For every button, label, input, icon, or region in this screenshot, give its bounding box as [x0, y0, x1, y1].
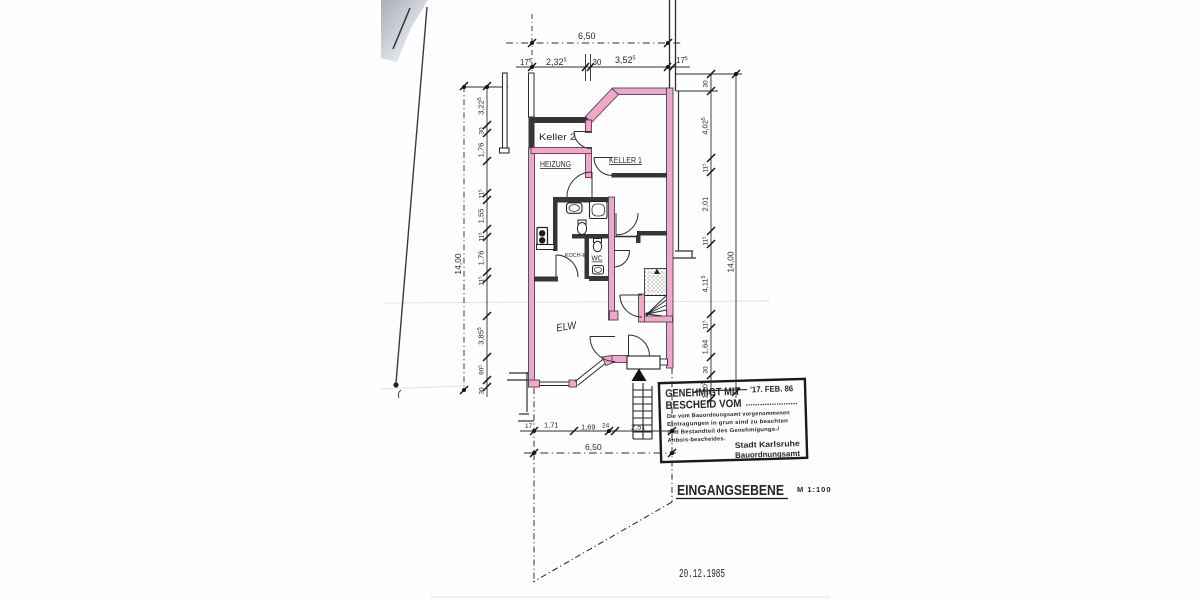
svg-text:30: 30 — [703, 366, 710, 374]
svg-text:BESCHEID VOM: BESCHEID VOM — [665, 398, 741, 412]
svg-text:1,76: 1,76 — [477, 143, 486, 158]
svg-text:24: 24 — [602, 423, 610, 430]
svg-text:Keller 2: Keller 2 — [539, 132, 576, 143]
svg-text:6,50: 6,50 — [578, 31, 596, 41]
svg-text:2,01: 2,01 — [701, 197, 710, 212]
svg-text:6,50: 6,50 — [585, 442, 602, 452]
svg-text:KOCH-E: KOCH-E — [565, 253, 587, 259]
svg-text:14,00: 14,00 — [453, 253, 463, 275]
svg-text:1,71: 1,71 — [544, 421, 559, 430]
svg-text:1,55: 1,55 — [477, 209, 486, 224]
svg-text:'17. FEB. 86: '17. FEB. 86 — [750, 383, 794, 394]
svg-text:EINGANGSEBENE: EINGANGSEBENE — [677, 482, 784, 499]
svg-text:30: 30 — [479, 387, 486, 395]
svg-text:......................: ...................... — [745, 397, 797, 408]
svg-text:1,64: 1,64 — [701, 340, 710, 355]
svg-text:30: 30 — [703, 80, 710, 88]
svg-text:M 1:100: M 1:100 — [797, 485, 832, 494]
svg-text:HEIZUNG: HEIZUNG — [540, 160, 571, 169]
svg-text:KELLER 1: KELLER 1 — [609, 155, 642, 165]
svg-text:1,69: 1,69 — [581, 423, 596, 432]
svg-text:2,325: 2,325 — [546, 57, 567, 67]
svg-text:17: 17 — [525, 423, 533, 430]
svg-text:WC: WC — [592, 256, 603, 263]
svg-text:20.12.1985: 20.12.1985 — [679, 567, 725, 581]
svg-text:14,00: 14,00 — [726, 251, 736, 273]
svg-text:3,525: 3,525 — [615, 55, 636, 65]
svg-text:30: 30 — [593, 58, 602, 67]
svg-text:1,76: 1,76 — [477, 251, 486, 266]
svg-text:30: 30 — [479, 127, 486, 135]
